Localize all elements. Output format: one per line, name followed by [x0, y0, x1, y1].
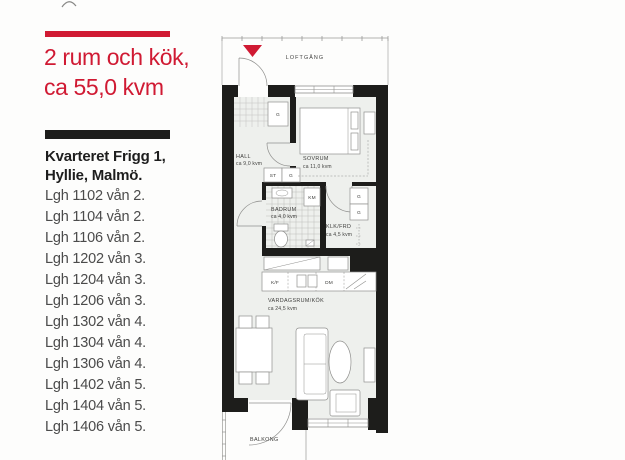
sovrum-label: SOVRUM — [303, 156, 329, 162]
coffee-table — [329, 341, 351, 383]
list-item: Lgh 1404 vån 5. — [45, 396, 215, 417]
list-item: Lgh 1206 vån 3. — [45, 291, 215, 312]
kf-label: K/F — [271, 280, 279, 286]
toilet-tank — [274, 224, 288, 231]
list-item: Lgh 1306 vån 4. — [45, 354, 215, 375]
entrance-door — [239, 58, 267, 86]
info-panel: 2 rum och kök, ca 55,0 kvm Kvarteret Fri… — [0, 0, 218, 460]
dining-chair — [256, 372, 269, 384]
hall-area-label: ca 9,0 kvm — [236, 161, 262, 167]
balkong-label: BALKONG — [250, 437, 279, 443]
dining-chair — [239, 316, 252, 328]
red-accent-bar — [45, 31, 170, 37]
kitchen-counter — [262, 272, 376, 291]
bedside-table — [364, 112, 375, 134]
dining-chair — [256, 316, 269, 328]
entrance-marker-triangle — [243, 45, 262, 57]
dining-chair — [239, 372, 252, 384]
badrum-area-label: ca 4,0 kvm — [271, 214, 297, 220]
kitchen-sink-basin-2 — [308, 275, 317, 287]
list-item: Lgh 1106 vån 2. — [45, 228, 215, 249]
dining-table — [236, 328, 272, 372]
kitchen-side-cabinet — [328, 257, 348, 270]
title-line-1: 2 rum och kök, — [44, 42, 214, 72]
wardrobe-g-label: G — [276, 112, 280, 118]
list-item: Lgh 1104 vån 2. — [45, 207, 215, 228]
hall-label: HALL — [236, 154, 251, 160]
loftgang-label: LOFTGÅNG — [286, 54, 324, 61]
list-item: Lgh 1302 vån 4. — [45, 312, 215, 333]
km-label: KM — [308, 195, 316, 201]
apartment-list: Lgh 1102 vån 2. Lgh 1104 vån 2. Lgh 1106… — [45, 186, 215, 438]
sovrum-area-label: ca 11,0 kvm — [303, 164, 332, 170]
address-line-1: Kvarteret Frigg 1, — [45, 147, 215, 166]
toilet-bowl — [275, 231, 288, 247]
klk-label: KLK/FRD — [326, 224, 351, 230]
list-item: Lgh 1406 vån 5. — [45, 417, 215, 438]
floorplan-drawing: LOFTGÅNG HALL ca 9,0 kvm SOVRUM ca 11,0 … — [218, 0, 393, 460]
bathroom-sink — [272, 188, 292, 198]
pillow-2 — [351, 133, 358, 150]
sovrum-window — [295, 86, 353, 93]
address-line-2: Hyllie, Malmö. — [45, 166, 215, 185]
g-klk-label-1: G — [357, 194, 361, 200]
dm-label: DM — [325, 280, 333, 286]
list-item: Lgh 1102 vån 2. — [45, 186, 215, 207]
list-item: Lgh 1204 vån 3. — [45, 270, 215, 291]
black-divider-bar — [45, 130, 170, 139]
kitchen-sink-basin-1 — [297, 275, 306, 287]
vardagsrum-area-label: ca 24,5 kvm — [268, 306, 297, 312]
address-block: Kvarteret Frigg 1, Hyllie, Malmö. — [45, 147, 215, 185]
klk-area-label: ca 4,5 kvm — [326, 232, 352, 238]
g-klk-label-2: G — [357, 210, 361, 216]
vardagsrum-window — [308, 419, 368, 427]
title-line-2: ca 55,0 kvm — [44, 72, 214, 102]
pillow-1 — [351, 112, 358, 129]
st-label: ST — [270, 173, 277, 179]
cropped-glyph-artifact — [60, 0, 78, 8]
list-item: Lgh 1402 vån 5. — [45, 375, 215, 396]
page-title: 2 rum och kök, ca 55,0 kvm — [44, 42, 214, 102]
vardagsrum-label: VARDAGSRUM/KÖK — [268, 297, 324, 304]
list-item: Lgh 1304 vån 4. — [45, 333, 215, 354]
g-label: G — [289, 173, 293, 179]
list-item: Lgh 1202 vån 3. — [45, 249, 215, 270]
badrum-label: BADRUM — [271, 207, 297, 213]
tv-bench — [364, 348, 375, 382]
